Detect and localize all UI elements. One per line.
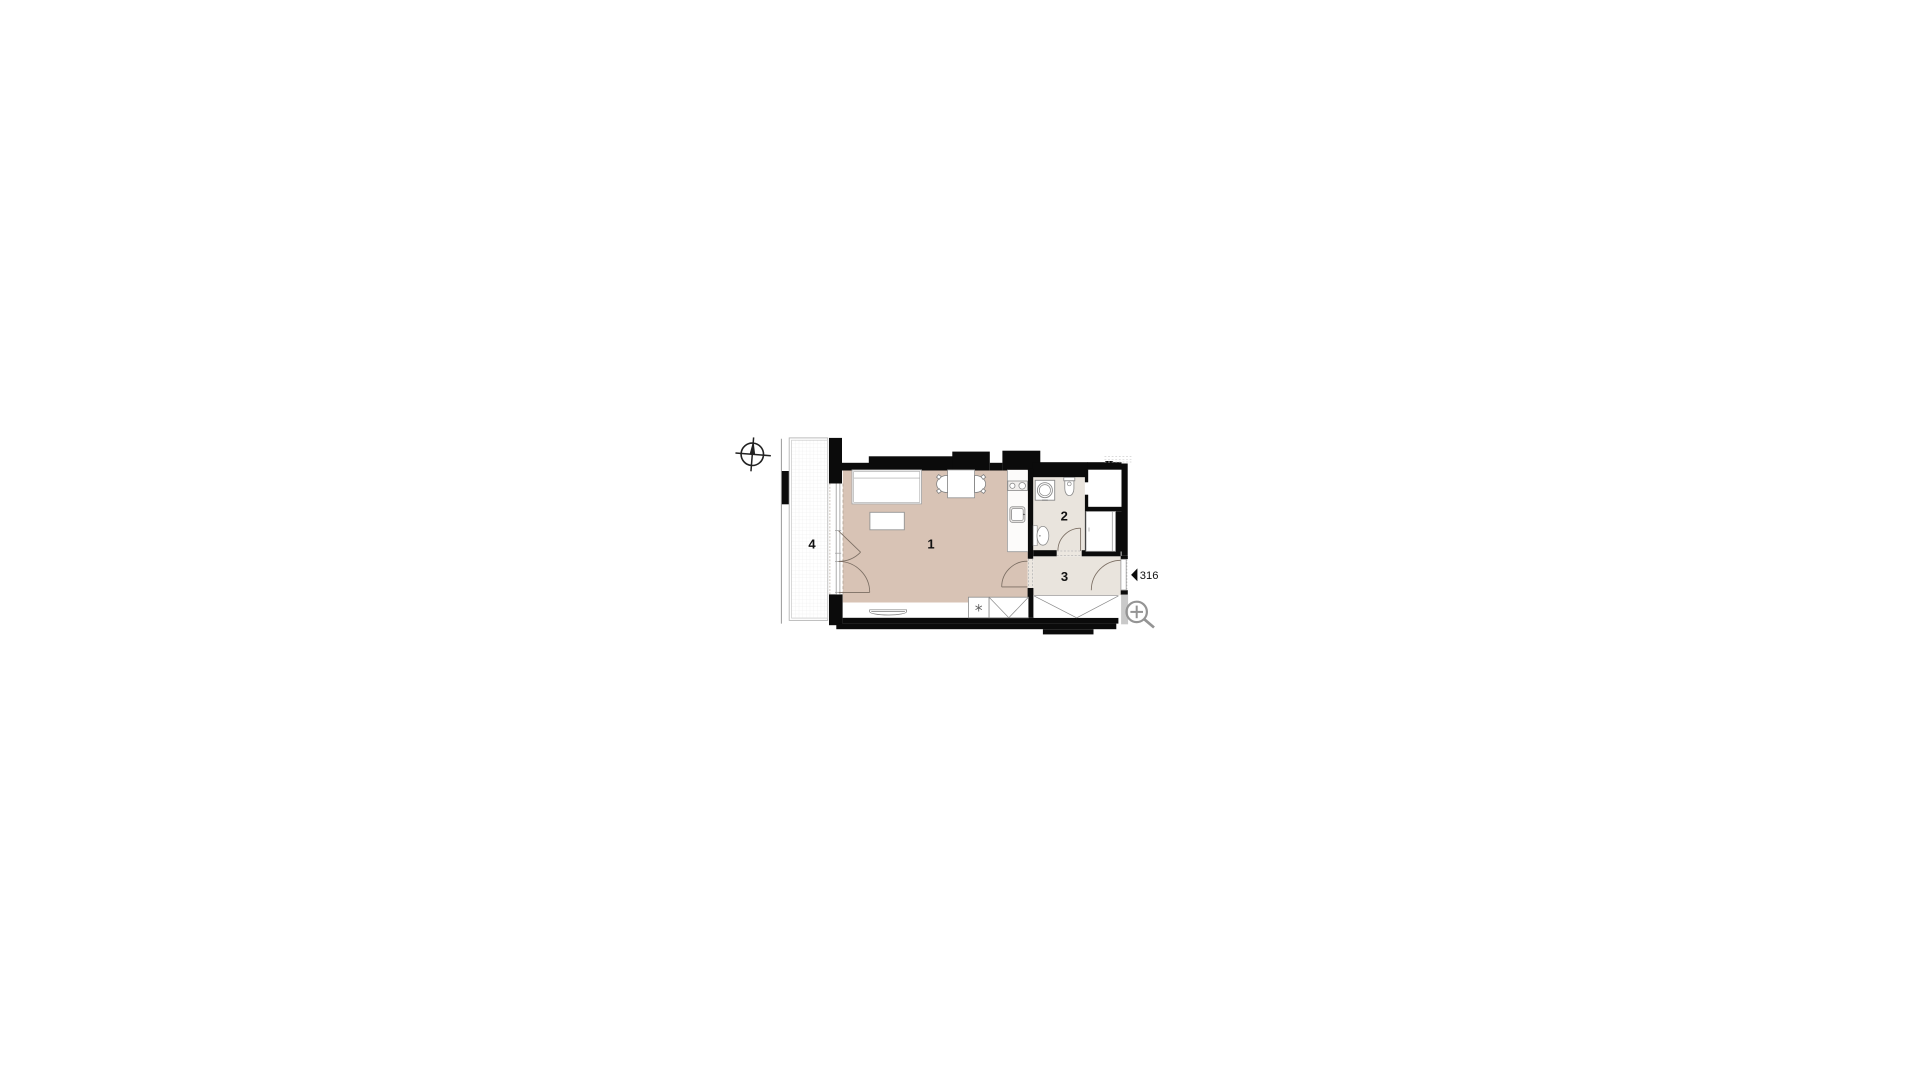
svg-text:4: 4 xyxy=(808,537,816,552)
svg-text:1: 1 xyxy=(927,536,934,551)
svg-text:3: 3 xyxy=(1061,569,1068,584)
svg-text:316: 316 xyxy=(1140,570,1159,582)
svg-text:2: 2 xyxy=(1061,509,1068,524)
